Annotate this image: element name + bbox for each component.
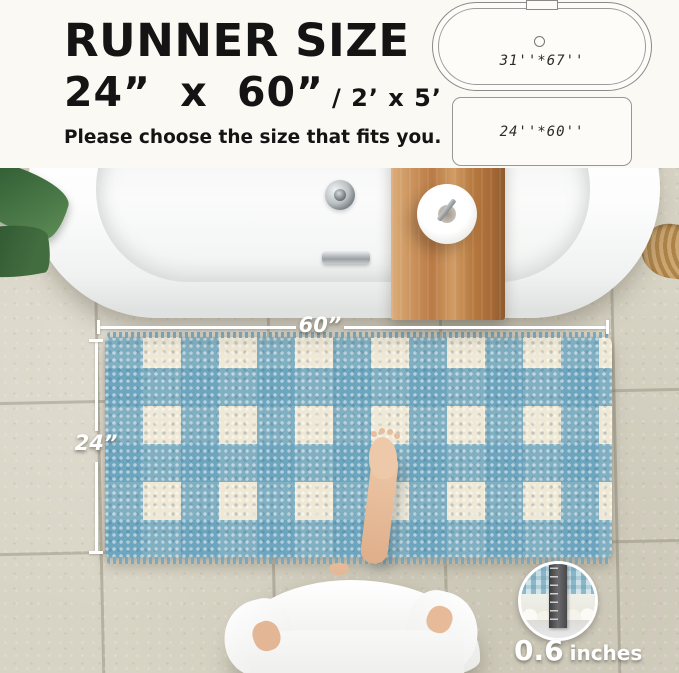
- width-arrow-cap: [606, 320, 609, 334]
- runner-size-label: 24''*60'': [453, 124, 631, 140]
- bathtub-size-diagram: 31''*67'': [432, 2, 652, 91]
- pile-height-unit: inches: [570, 641, 643, 665]
- height-arrow-cap: [89, 339, 103, 342]
- rug-fringe-bottom: [107, 557, 610, 564]
- height-dimension-label: 24”: [71, 431, 121, 455]
- product-image: RUNNER SIZE 24” x 60” / 2’ x 5’ Please c…: [0, 0, 679, 673]
- person-toes: [371, 431, 377, 437]
- size-secondary: / 2’ x 5’: [332, 84, 442, 112]
- gingham-runner-rug: [105, 337, 612, 558]
- bathrobe-lower: [250, 630, 464, 673]
- bathtub-drain-icon: [534, 36, 545, 47]
- size-line: 24” x 60” / 2’ x 5’: [64, 68, 442, 116]
- ruler-icon: [549, 564, 567, 628]
- width-arrow-cap: [97, 320, 100, 334]
- toilet-paper-roll: [417, 184, 477, 244]
- banner-title: RUNNER SIZE: [64, 14, 410, 67]
- tub-chrome-lever: [322, 251, 370, 264]
- height-arrow-line: [95, 341, 98, 431]
- rug-fringe-top: [107, 332, 610, 338]
- tub-overflow-drain: [325, 180, 355, 210]
- width-arrow-line: [344, 326, 608, 329]
- size-primary: 24” x 60”: [64, 68, 324, 116]
- pile-height-label: 0.6inches: [514, 634, 654, 667]
- person-other-toes: [329, 563, 349, 575]
- bathtub-faucet-icon: [526, 0, 558, 10]
- bathroom-photo: 60” 24” 0.6inches: [0, 168, 679, 673]
- banner-subtitle: Please choose the size that fits you.: [64, 127, 441, 148]
- height-arrow-cap: [89, 551, 103, 554]
- size-banner: RUNNER SIZE 24” x 60” / 2’ x 5’ Please c…: [0, 0, 679, 168]
- height-arrow-line: [95, 462, 98, 551]
- bathtub-diagram-inner-outline: [438, 8, 646, 85]
- bathtub-size-label: 31''*67'': [433, 53, 651, 69]
- width-arrow-line: [98, 326, 296, 329]
- pile-height-value: 0.6: [514, 634, 564, 667]
- pile-height-inset: [518, 561, 598, 641]
- runner-size-diagram: 24''*60'': [452, 97, 632, 166]
- width-dimension-label: 60”: [296, 313, 344, 337]
